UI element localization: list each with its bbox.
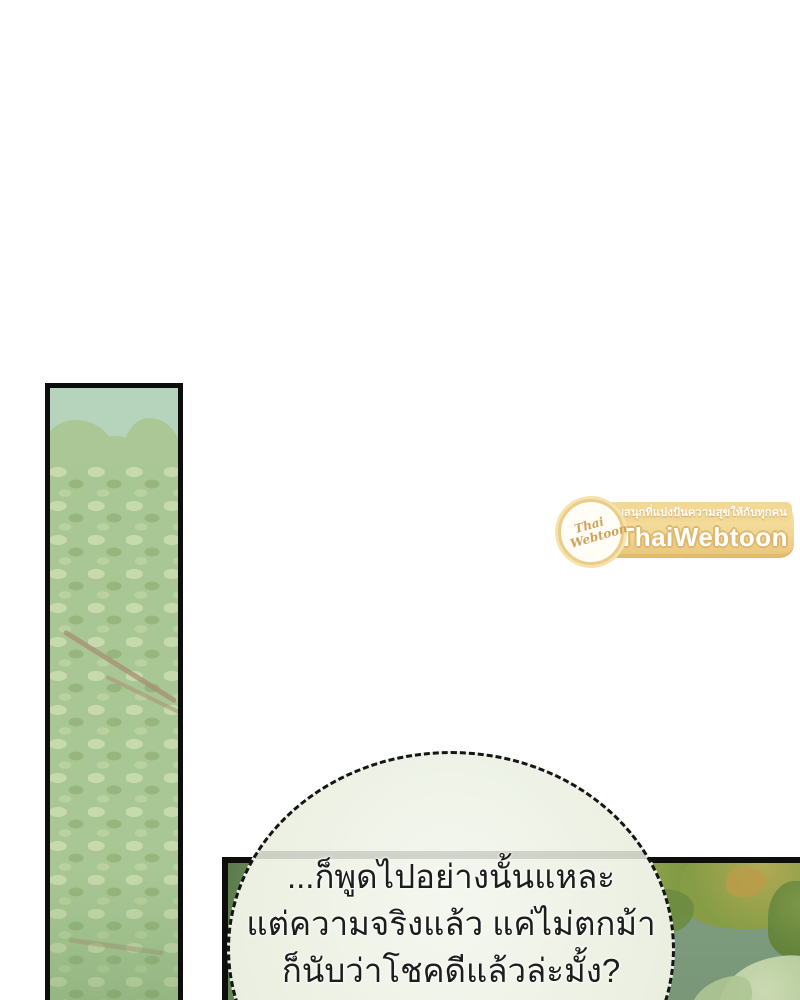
logo-script-text: Thai Webtoon — [565, 513, 616, 551]
bubble-text-line: ก็นับว่าโชคดีแล้วล่ะมั้ง? — [230, 947, 672, 994]
panel-left-foliage — [45, 383, 183, 1000]
thaiwebtoon-logo-icon: Thai Webtoon — [558, 499, 624, 565]
bubble-text-line: ...ก็พูดไปอย่างนั้นแหละ — [230, 853, 672, 900]
thaiwebtoon-watermark: เว็บสนุกที่แบ่งปันความสุขให้กับทุกคน Tha… — [556, 496, 796, 568]
webtoon-page: ...ก็พูดไปอย่างนั้นแหละ แต่ความจริงแล้ว … — [0, 0, 800, 1000]
watermark-brand-text: ThaiWebtoon — [618, 522, 788, 553]
bubble-text-line: แต่ความจริงแล้ว แค่ไม่ตกม้า — [230, 900, 672, 947]
foliage-shade — [50, 868, 178, 1000]
bubble-text: ...ก็พูดไปอย่างนั้นแหละ แต่ความจริงแล้ว … — [230, 853, 672, 994]
watermark-tagline: เว็บสนุกที่แบ่งปันความสุขให้กับทุกคน — [602, 502, 792, 522]
speech-bubble: ...ก็พูดไปอย่างนั้นแหละ แต่ความจริงแล้ว … — [227, 751, 675, 1000]
